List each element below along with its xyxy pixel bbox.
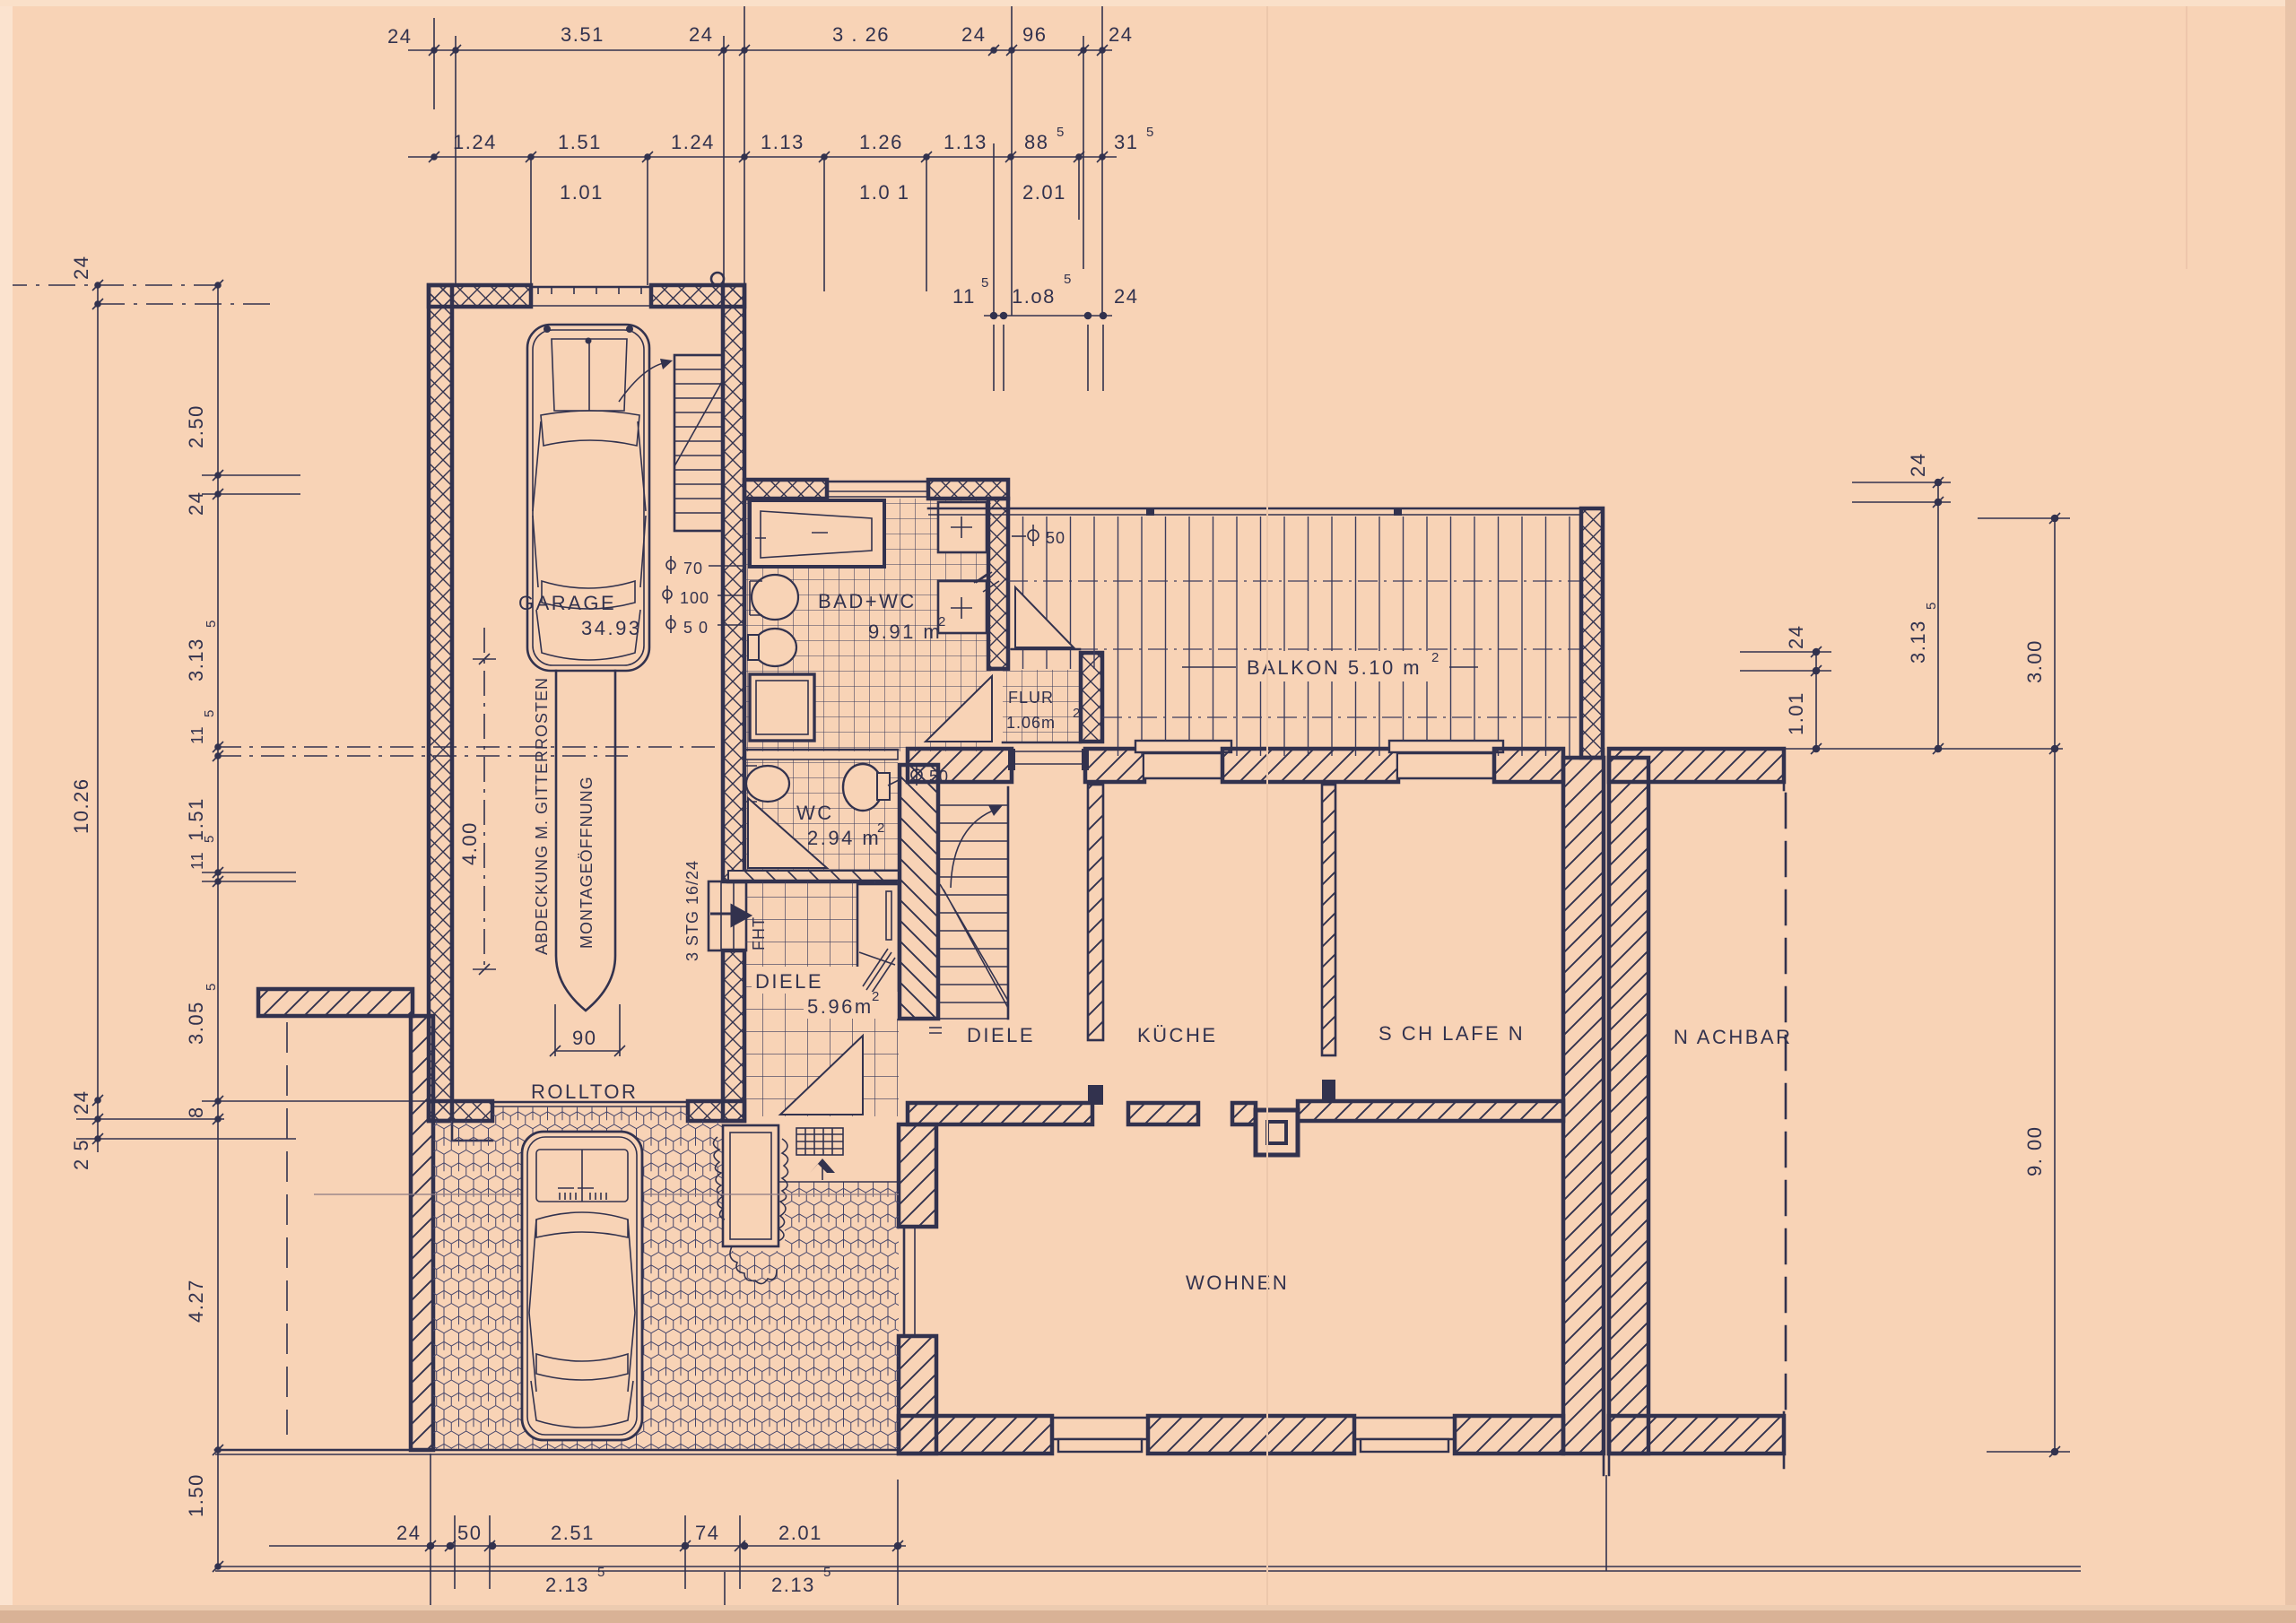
- svg-text:5: 5: [981, 275, 988, 291]
- svg-text:74: 74: [695, 1522, 719, 1544]
- svg-text:34.93: 34.93: [581, 617, 642, 639]
- svg-text:5: 5: [204, 621, 219, 628]
- svg-text:5: 5: [597, 1565, 604, 1580]
- svg-text:24: 24: [689, 23, 713, 46]
- svg-text:1.01: 1.01: [560, 181, 604, 204]
- svg-text:5: 5: [1057, 125, 1064, 140]
- svg-text:5 0: 5 0: [683, 619, 709, 637]
- svg-text:2 5: 2 5: [70, 1139, 92, 1170]
- svg-text:N ACHBAR: N ACHBAR: [1674, 1026, 1792, 1048]
- svg-text:1.26: 1.26: [859, 131, 903, 153]
- svg-text:4.00: 4.00: [458, 821, 481, 865]
- svg-text:5: 5: [1924, 603, 1939, 610]
- svg-text:3 . 26: 3 . 26: [832, 23, 890, 46]
- svg-text:2: 2: [877, 820, 884, 836]
- svg-text:88: 88: [1024, 131, 1048, 153]
- svg-text:1.24: 1.24: [453, 131, 497, 153]
- svg-text:10.26: 10.26: [70, 777, 92, 834]
- svg-text:5: 5: [823, 1565, 831, 1580]
- svg-text:1.o8: 1.o8: [1012, 285, 1056, 308]
- svg-text:1.13: 1.13: [944, 131, 987, 153]
- svg-text:11: 11: [188, 851, 206, 870]
- svg-text:8: 8: [185, 1106, 207, 1118]
- svg-text:1.51: 1.51: [185, 797, 207, 841]
- svg-text:2: 2: [1431, 650, 1439, 665]
- svg-text:9. 00: 9. 00: [2023, 1126, 2046, 1176]
- svg-text:S CH LAFE N: S CH LAFE N: [1378, 1022, 1525, 1045]
- svg-text:31: 31: [1114, 131, 1138, 153]
- svg-text:24: 24: [387, 25, 412, 48]
- svg-text:96: 96: [1022, 23, 1047, 46]
- svg-text:2.94 m: 2.94 m: [807, 827, 881, 849]
- svg-text:KÜCHE: KÜCHE: [1137, 1024, 1218, 1046]
- svg-text:50: 50: [457, 1522, 482, 1544]
- svg-text:5: 5: [1064, 272, 1071, 287]
- svg-text:24: 24: [1109, 23, 1133, 46]
- svg-text:5: 5: [1146, 125, 1153, 140]
- svg-text:2.01: 2.01: [1022, 181, 1066, 204]
- svg-text:9.91 m: 9.91 m: [868, 621, 942, 643]
- svg-text:1.06m: 1.06m: [1006, 714, 1056, 732]
- svg-text:11: 11: [952, 285, 976, 308]
- svg-text:1.24: 1.24: [671, 131, 715, 153]
- svg-text:GARAGE: GARAGE: [518, 592, 616, 614]
- svg-text:2: 2: [938, 614, 945, 629]
- svg-text:ROLLTOR: ROLLTOR: [531, 1081, 638, 1103]
- svg-text:5: 5: [202, 710, 217, 717]
- svg-text:4.27: 4.27: [185, 1279, 207, 1323]
- svg-text:1.0 1: 1.0 1: [859, 181, 909, 204]
- svg-text:FLUR: FLUR: [1008, 689, 1054, 707]
- svg-text:24: 24: [70, 256, 92, 280]
- svg-text:DIELE: DIELE: [967, 1024, 1035, 1046]
- svg-text:70: 70: [683, 560, 703, 577]
- svg-text:2.51: 2.51: [551, 1522, 595, 1544]
- svg-text:24: 24: [1907, 453, 1929, 477]
- svg-text:DIELE: DIELE: [755, 970, 823, 993]
- svg-text:24: 24: [1114, 285, 1138, 308]
- svg-text:WOHNEN: WOHNEN: [1186, 1271, 1289, 1294]
- svg-text:ABDECKUNG M. GITTERROSTEN: ABDECKUNG M. GITTERROSTEN: [533, 677, 551, 955]
- svg-text:11: 11: [188, 725, 206, 744]
- svg-text:1.51: 1.51: [558, 131, 602, 153]
- svg-text:1.50: 1.50: [185, 1473, 207, 1517]
- svg-text:5.96m: 5.96m: [807, 995, 874, 1018]
- svg-text:1.01: 1.01: [1785, 691, 1807, 735]
- svg-text:3 STG 16/24: 3 STG 16/24: [683, 860, 701, 961]
- svg-text:5: 5: [202, 836, 217, 843]
- svg-text:3.13: 3.13: [1907, 620, 1929, 664]
- svg-text:100: 100: [680, 589, 709, 607]
- svg-text:24: 24: [185, 491, 207, 516]
- svg-text:24: 24: [961, 23, 986, 46]
- svg-text:2.13: 2.13: [545, 1574, 589, 1596]
- svg-text:90: 90: [572, 1027, 596, 1049]
- svg-text:2.13: 2.13: [771, 1574, 815, 1596]
- svg-text:BALKON 5.10 m: BALKON 5.10 m: [1247, 656, 1422, 679]
- svg-text:3.51: 3.51: [561, 23, 604, 46]
- svg-text:MONTAGEÖFFNUNG: MONTAGEÖFFNUNG: [578, 776, 596, 949]
- svg-text:24: 24: [1785, 625, 1807, 649]
- svg-text:BAD+WC: BAD+WC: [818, 590, 917, 612]
- svg-text:50: 50: [1046, 529, 1065, 547]
- svg-text:2.01: 2.01: [778, 1522, 822, 1544]
- svg-text:24: 24: [70, 1090, 92, 1115]
- svg-text:2: 2: [872, 989, 879, 1004]
- svg-text:3.00: 3.00: [2023, 639, 2046, 683]
- svg-text:5: 5: [204, 984, 219, 991]
- svg-text:3.13: 3.13: [185, 638, 207, 681]
- svg-text:24: 24: [396, 1522, 421, 1544]
- svg-text:2.50: 2.50: [185, 404, 207, 448]
- svg-text:3.05: 3.05: [185, 1001, 207, 1045]
- svg-text:WC: WC: [796, 802, 834, 824]
- svg-text:1.13: 1.13: [761, 131, 804, 153]
